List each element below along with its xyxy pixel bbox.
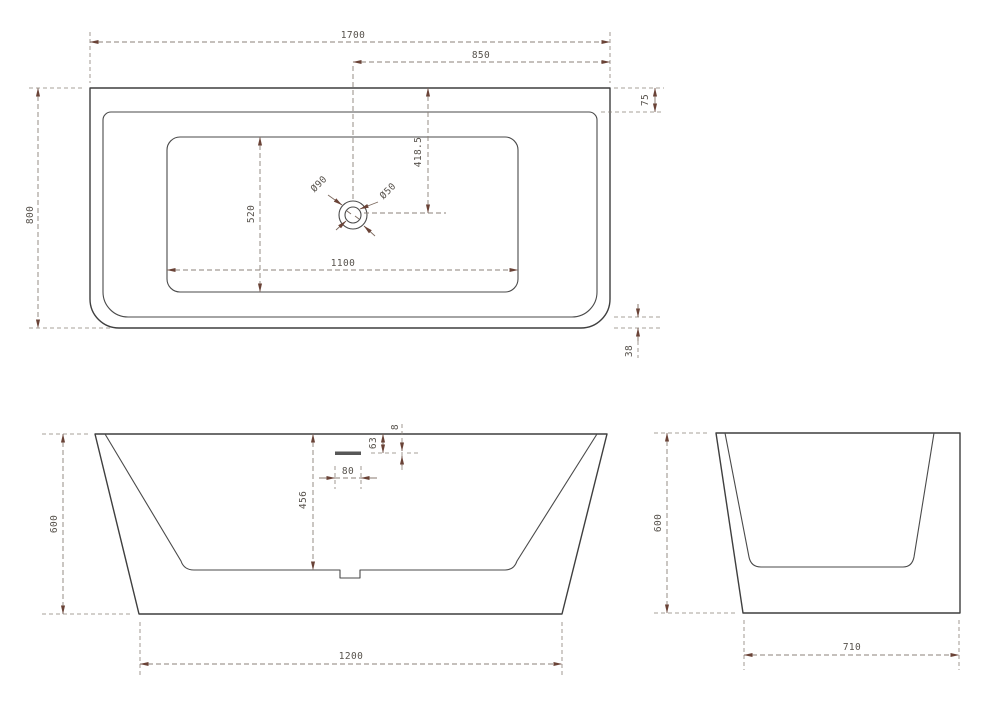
dim-label-drain-to-end: 850 <box>472 50 490 61</box>
tub-inner-rim-outline <box>103 112 597 317</box>
ext-line <box>654 433 735 613</box>
leader-drain-outer <box>328 195 342 205</box>
dim-label-front-rim: 38 <box>624 345 635 357</box>
front-view: 600 456 80 63 8 1200 <box>42 424 607 676</box>
dim-label-back-rim: 75 <box>640 94 651 106</box>
drain-center-ticks <box>347 211 359 219</box>
ext-line <box>140 622 562 676</box>
dim-label-front-height: 600 <box>49 515 60 533</box>
ext-line <box>29 88 113 328</box>
dim-label-base-length: 1200 <box>339 651 363 662</box>
overflow-slot <box>335 452 361 456</box>
dim-label-basin-length: 1100 <box>331 258 355 269</box>
side-view: 600 710 <box>653 433 960 670</box>
side-outer-outline <box>716 433 960 613</box>
top-view: 1700 850 75 800 418.5 520 1100 38 Ø90 <box>25 30 664 358</box>
dim-label-drain-offset: 418.5 <box>413 137 424 168</box>
drawing-sheet: 1700 850 75 800 418.5 520 1100 38 Ø90 <box>0 0 1000 706</box>
front-inner-basin-outline <box>105 434 597 578</box>
front-outer-outline <box>95 434 607 614</box>
technical-drawing: 1700 850 75 800 418.5 520 1100 38 Ø90 <box>0 0 1000 706</box>
dim-label-overall-width: 800 <box>25 206 36 224</box>
dim-label-overflow-width: 80 <box>342 466 354 477</box>
dim-label-side-base-width: 710 <box>843 642 861 653</box>
dim-label-rim-to-floor: 456 <box>298 491 309 509</box>
dim-label-drain-inner: Ø50 <box>378 181 399 202</box>
dim-label-drain-outer: Ø90 <box>309 174 330 195</box>
dim-label-side-height: 600 <box>653 514 664 532</box>
dim-label-basin-width: 520 <box>246 205 257 223</box>
drain-outer-circle <box>339 201 367 229</box>
drain-inner-circle <box>345 207 361 223</box>
dim-label-overflow-slot: 8 <box>390 424 401 430</box>
dim-label-overall-length: 1700 <box>341 30 365 41</box>
dim-label-overflow-from-rim: 63 <box>368 437 379 449</box>
side-inner-basin-outline <box>725 433 934 567</box>
leader-drain-outer-tail <box>364 226 375 236</box>
